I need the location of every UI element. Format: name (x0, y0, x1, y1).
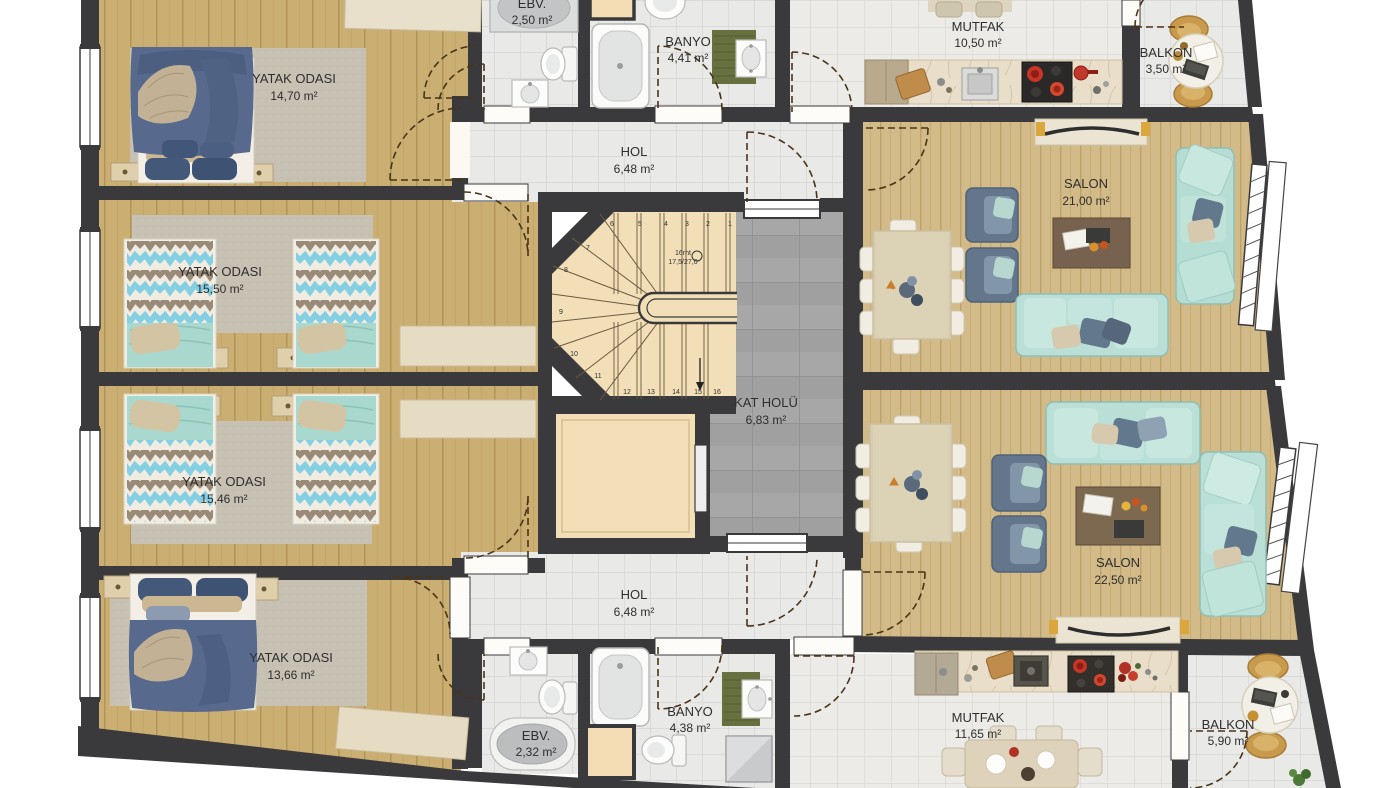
svg-text:HOL: HOL (621, 144, 648, 159)
svg-text:1: 1 (728, 221, 732, 228)
svg-text:13,66 m²: 13,66 m² (267, 668, 314, 682)
svg-text:YATAK ODASI: YATAK ODASI (249, 650, 333, 665)
svg-text:8: 8 (564, 267, 568, 274)
svg-text:4,41 m²: 4,41 m² (668, 51, 709, 65)
svg-text:14,70 m²: 14,70 m² (270, 89, 317, 103)
svg-text:2,32 m²: 2,32 m² (516, 745, 557, 759)
svg-text:BALKON: BALKON (1202, 717, 1255, 732)
svg-text:15,50 m²: 15,50 m² (196, 282, 243, 296)
svg-text:SALON: SALON (1096, 555, 1140, 570)
svg-text:11: 11 (594, 373, 601, 380)
svg-text:EBV.: EBV. (518, 0, 546, 11)
svg-text:7: 7 (586, 245, 590, 252)
svg-text:5,90 m²: 5,90 m² (1208, 734, 1249, 748)
svg-text:YATAK ODASI: YATAK ODASI (178, 264, 262, 279)
svg-text:4,38 m²: 4,38 m² (670, 721, 711, 735)
svg-text:22,50 m²: 22,50 m² (1094, 573, 1141, 587)
svg-text:6,83 m²: 6,83 m² (746, 413, 787, 427)
svg-text:2: 2 (706, 221, 710, 228)
svg-text:15: 15 (694, 389, 702, 396)
svg-text:MUTFAK: MUTFAK (952, 710, 1005, 725)
svg-text:SALON: SALON (1064, 176, 1108, 191)
svg-text:3: 3 (685, 221, 689, 228)
svg-text:3,50 m²: 3,50 m² (1146, 62, 1187, 76)
svg-text:MUTFAK: MUTFAK (952, 19, 1005, 34)
svg-text:16: 16 (713, 389, 721, 396)
svg-text:YATAK ODASI: YATAK ODASI (182, 474, 266, 489)
svg-text:13: 13 (647, 389, 655, 396)
svg-text:21,00 m²: 21,00 m² (1062, 194, 1109, 208)
svg-text:15,46 m²: 15,46 m² (200, 492, 247, 506)
svg-text:12: 12 (623, 389, 631, 396)
svg-text:BANYO: BANYO (667, 704, 713, 719)
svg-text:6,48 m²: 6,48 m² (614, 162, 655, 176)
svg-text:2,50 m²: 2,50 m² (512, 13, 553, 27)
svg-text:BANYO: BANYO (665, 34, 711, 49)
svg-text:16rht: 16rht (675, 250, 691, 257)
svg-text:6: 6 (610, 221, 614, 228)
svg-text:EBV.: EBV. (522, 728, 550, 743)
svg-text:11,65 m²: 11,65 m² (955, 727, 1001, 741)
svg-text:YATAK ODASI: YATAK ODASI (252, 71, 336, 86)
svg-text:10,50 m²: 10,50 m² (954, 36, 1001, 50)
svg-text:KAT HOLÜ: KAT HOLÜ (734, 395, 798, 410)
svg-text:6,48 m²: 6,48 m² (614, 605, 655, 619)
svg-text:4: 4 (664, 221, 668, 228)
svg-text:HOL: HOL (621, 587, 648, 602)
svg-text:14: 14 (672, 389, 680, 396)
svg-text:5: 5 (638, 221, 642, 228)
svg-text:9: 9 (559, 309, 563, 316)
svg-text:BALKON: BALKON (1140, 45, 1193, 60)
svg-text:10: 10 (570, 351, 578, 358)
